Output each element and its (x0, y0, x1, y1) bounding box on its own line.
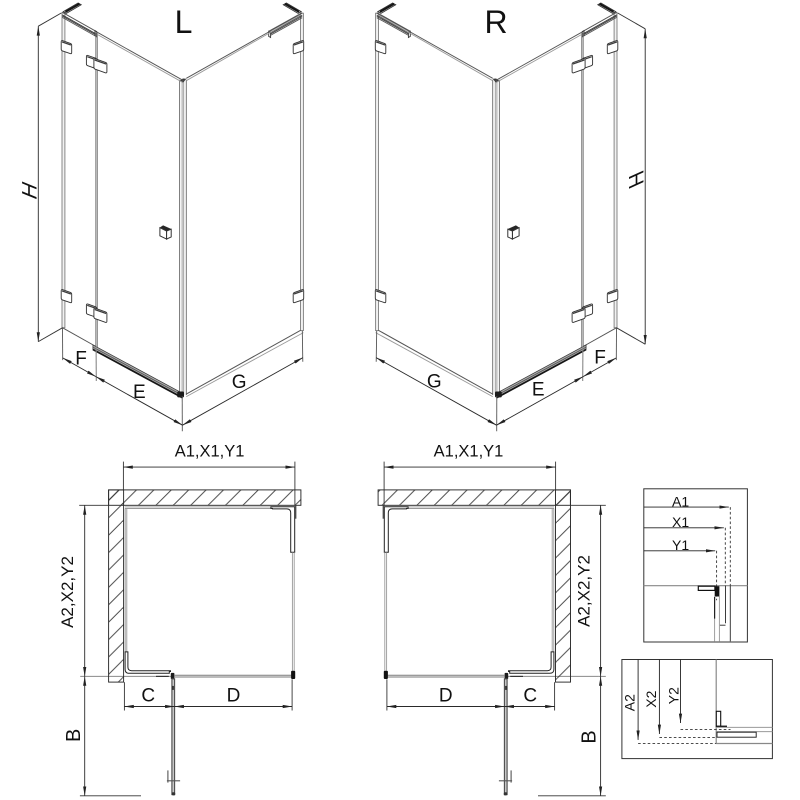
svg-text:G: G (427, 372, 442, 393)
svg-text:A1,X1,Y1: A1,X1,Y1 (175, 442, 245, 460)
svg-text:A2: A2 (621, 694, 637, 711)
svg-text:R: R (485, 4, 508, 40)
svg-text:A2,X2,Y2: A2,X2,Y2 (58, 556, 77, 628)
svg-text:F: F (75, 348, 87, 369)
svg-text:X2: X2 (643, 690, 659, 707)
svg-text:B: B (63, 729, 85, 742)
svg-text:A2,X2,Y2: A2,X2,Y2 (575, 555, 594, 627)
svg-text:E: E (133, 382, 146, 403)
svg-text:G: G (232, 372, 247, 393)
svg-text:D: D (439, 685, 453, 706)
svg-text:L: L (175, 4, 193, 40)
svg-text:E: E (532, 380, 545, 401)
svg-text:B: B (579, 730, 601, 743)
svg-text:C: C (141, 685, 155, 706)
svg-text:C: C (523, 685, 537, 706)
svg-text:A1,X1,Y1: A1,X1,Y1 (434, 442, 504, 460)
svg-text:D: D (227, 685, 241, 706)
svg-text:Y2: Y2 (665, 687, 681, 704)
svg-text:F: F (594, 348, 606, 369)
